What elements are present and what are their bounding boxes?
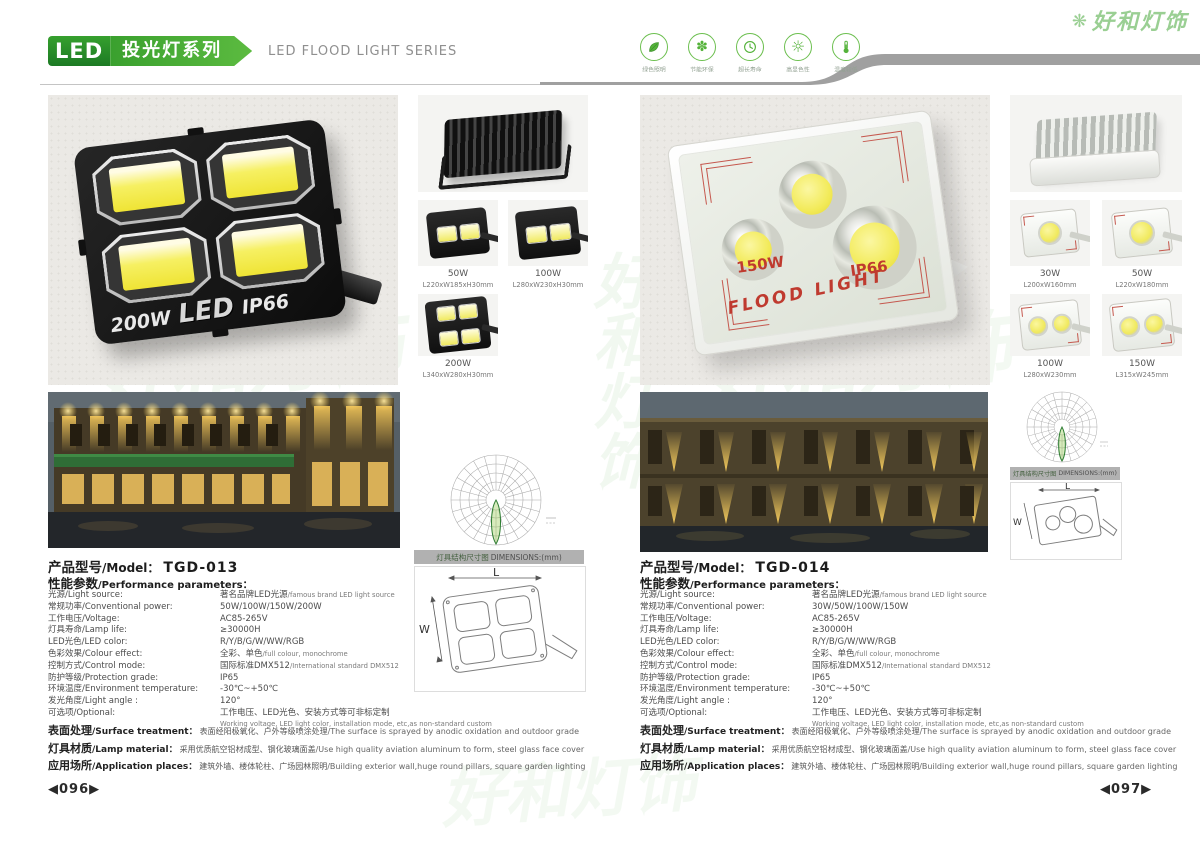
thumb-caption: 30W L200xW160mm	[1010, 269, 1090, 289]
mini-lamp	[1111, 207, 1173, 259]
spec-sub: /famous brand LED light source	[880, 591, 987, 599]
thumb-caption: 100W L280xW230mm	[1010, 359, 1090, 379]
corner-ornament	[861, 131, 909, 187]
spec-row: 工作电压/Voltage:AC85-265V	[48, 614, 420, 626]
sun-icon: ☼	[784, 33, 812, 61]
product-photo-white-floodlight: 150W FLOOD LIGHT IP66	[640, 95, 990, 385]
spec-row: 发光角度/Light angle :120°	[48, 696, 420, 708]
spec-row: 发光角度/Light angle :120°	[640, 696, 1012, 708]
spec-value: 全彩、单色	[812, 649, 855, 659]
edge-tab	[78, 239, 87, 256]
footnote-label-cn: 表面处理	[640, 724, 684, 737]
spec-value: 30W/50W/100W/150W	[812, 602, 908, 612]
thumb-30w	[1010, 200, 1090, 266]
thumb-150w	[1102, 294, 1182, 356]
spec-label: LED光色/LED color:	[48, 637, 220, 649]
thumb-size: L200xW160mm	[1013, 281, 1087, 289]
mini-chip	[1027, 315, 1049, 337]
spec-row: 工作电压/Voltage:AC85-265V	[640, 614, 1012, 626]
footnote-cn: 建筑外墙、楼体轮柱、广场园林照明	[199, 762, 327, 771]
footnote-label-en: /Lamp material：	[92, 745, 178, 755]
spec-value: 国际标准DMX512	[812, 661, 882, 671]
mini-chip	[438, 330, 458, 347]
led-chip	[100, 224, 213, 306]
mini-chip	[1037, 220, 1063, 246]
mini-chip	[459, 223, 481, 241]
spec-label: 防护等级/Protection grade:	[640, 673, 812, 685]
thermometer-icon	[832, 33, 860, 61]
spec-label: 环境温度/Environment temperature:	[48, 684, 220, 696]
feature-high-cri: ☼ 高显色性	[780, 33, 816, 74]
spec-label: 发光角度/Light angle :	[640, 696, 812, 708]
corner-mark	[1158, 241, 1170, 251]
spec-value: ≥30000H	[812, 625, 853, 635]
spec-value: 50W/100W/150W/200W	[220, 602, 322, 612]
footnotes: 表面处理/Surface treatment：表面经阳极氧化、户外等级喷涂处理/…	[640, 722, 1188, 775]
spec-value: R/Y/B/G/W/WW/RGB	[220, 637, 304, 647]
marking-ip: IP66	[241, 290, 291, 318]
dimension-drawing: L W	[414, 566, 586, 692]
footnote-row: 应用场所/Application places：建筑外墙、楼体轮柱、广场园林照明…	[48, 757, 596, 775]
feature-label: 绿色照明	[642, 65, 665, 74]
spec-label: 工作电压/Voltage:	[640, 614, 812, 626]
footnote-label-en: /Surface treatment：	[684, 727, 790, 737]
mini-lamp	[426, 207, 490, 259]
spec-value: 120°	[812, 696, 832, 706]
params-cn: 性能参数	[640, 576, 690, 591]
spec-value: 工作电压、LED光色、安装方式等可非标定制	[812, 708, 982, 718]
thumb-power: 100W	[1010, 359, 1090, 370]
mini-lamp	[1109, 298, 1176, 352]
mini-chip	[1051, 313, 1073, 335]
spec-label: 常规功率/Conventional power:	[48, 602, 220, 614]
beam-lobe	[1059, 427, 1066, 461]
led-chip-round	[774, 156, 851, 233]
banner-text-cn: 灯具结构尺寸图	[436, 552, 489, 563]
mini-chip	[1143, 312, 1166, 335]
corner-mark	[1065, 240, 1077, 250]
corner-mark	[1021, 307, 1033, 317]
light-distribution-polar-chart	[424, 452, 574, 548]
mini-lamp	[424, 296, 491, 354]
mini-chip	[549, 222, 572, 241]
leaf-icon	[640, 33, 668, 61]
corner-mark	[1112, 306, 1124, 316]
led-logo-badge: LED	[48, 36, 110, 66]
footnote-label-en: /Surface treatment：	[92, 727, 198, 737]
spec-row: LED光色/LED color:R/Y/B/G/W/WW/RGB	[48, 637, 420, 649]
spec-label: 发光角度/Light angle :	[48, 696, 220, 708]
mini-lamp	[1020, 208, 1080, 258]
feature-long-life: 超长寿命	[732, 33, 768, 74]
edge-tab	[212, 329, 229, 338]
spec-label: 灯具寿命/Lamp life:	[640, 625, 812, 637]
page-number-left: ◀096▶	[48, 782, 100, 797]
feature-label: 超长寿命	[738, 65, 761, 74]
footnote-en: /The surface is sprayed by anodic oxidat…	[920, 727, 1171, 736]
dim-label-w: W	[419, 623, 430, 636]
thumb-100w	[508, 200, 588, 266]
thumb-power: 150W	[1102, 359, 1182, 370]
spec-row: 环境温度/Environment temperature:-30℃~+50℃	[640, 684, 1012, 696]
marking-brand: LED	[176, 292, 236, 329]
series-title-cn: 投光灯系列	[110, 36, 252, 66]
header-divider	[40, 84, 560, 85]
thumb-caption: 100W L280xW230xH30mm	[508, 269, 588, 289]
footnotes: 表面处理/Surface treatment：表面经阳极氧化、户外等级喷涂处理/…	[48, 722, 596, 775]
params-cn: 性能参数	[48, 576, 98, 591]
led-chip	[90, 146, 203, 228]
footnote-cn: 采用优质航空铝材成型、钢化玻璃面盖	[772, 745, 908, 754]
thumb-size: L220xW185xH30mm	[421, 281, 495, 289]
spec-label: 控制方式/Control mode:	[48, 661, 220, 673]
floodlight-body: 150W FLOOD LIGHT IP66	[667, 110, 960, 357]
footnote-cn: 建筑外墙、楼体轮柱、广场园林照明	[791, 762, 919, 771]
dim-label-l: L	[1065, 483, 1070, 492]
spec-label: 灯具寿命/Lamp life:	[48, 625, 220, 637]
spec-row: 控制方式/Control mode:国际标准DMX512/Internation…	[640, 661, 1012, 673]
footnote-cn: 表面经阳极氧化、户外等级喷涂处理	[792, 727, 920, 736]
thumb-caption: 200W L340xW280xH30mm	[418, 359, 498, 379]
thumb-rear-view	[418, 95, 588, 192]
mini-lamp	[1018, 299, 1082, 351]
footnote-label-cn: 应用场所	[640, 759, 684, 772]
footnote-en: /Building exterior wall,huge round pilla…	[327, 762, 585, 771]
spec-label: 光源/Light source:	[48, 590, 220, 602]
spec-row: 色彩效果/Colour effect:全彩、单色/full colour, mo…	[640, 649, 1012, 661]
footnote-label-cn: 表面处理	[48, 724, 92, 737]
series-logo: LED 投光灯系列	[48, 36, 252, 66]
feature-green-lighting: 绿色照明	[636, 33, 672, 74]
thumb-power: 50W	[1102, 269, 1182, 280]
spec-value: 全彩、单色	[220, 649, 263, 659]
clock-icon	[736, 33, 764, 61]
footnote-cn: 采用优质航空铝材成型、钢化玻璃面盖	[180, 745, 316, 754]
footnote-row: 表面处理/Surface treatment：表面经阳极氧化、户外等级喷涂处理/…	[48, 722, 596, 740]
led-chip-array	[90, 132, 326, 306]
mini-chip	[460, 328, 480, 345]
beam-lobe	[492, 500, 501, 544]
footnote-en: /Building exterior wall,huge round pilla…	[919, 762, 1177, 771]
spec-table: 光源/Light source:著名品牌LED光源/famous brand L…	[48, 590, 420, 729]
corner-mark	[1160, 334, 1172, 344]
floodlight-body: 200WLEDIP66	[73, 118, 347, 345]
footnote-label-cn: 灯具材质	[48, 742, 92, 755]
spec-row: 防护等级/Protection grade:IP65	[48, 673, 420, 685]
thumb-size: L220xW180mm	[1105, 281, 1179, 289]
spec-sub: /full colour, monochrome	[855, 650, 940, 658]
mini-chip	[525, 225, 548, 244]
mini-chip	[1118, 315, 1141, 338]
footnote-cn: 表面经阳极氧化、户外等级喷涂处理	[200, 727, 328, 736]
thumb-power: 30W	[1010, 269, 1090, 280]
spec-row: 常规功率/Conventional power:30W/50W/100W/150…	[640, 602, 1012, 614]
spec-label: 工作电压/Voltage:	[48, 614, 220, 626]
application-photo-building-night	[640, 392, 988, 552]
spec-label: LED光色/LED color:	[640, 637, 812, 649]
thumb-caption: 150W L315xW245mm	[1102, 359, 1182, 379]
thumb-size: L280xW230xH30mm	[511, 281, 585, 289]
spec-value: 国际标准DMX512	[220, 661, 290, 671]
spec-row: 防护等级/Protection grade:IP65	[640, 673, 1012, 685]
thumb-power: 100W	[508, 269, 588, 280]
spec-row: 常规功率/Conventional power:50W/100W/150W/20…	[48, 602, 420, 614]
spec-row: 色彩效果/Colour effect:全彩、单色/full colour, mo…	[48, 649, 420, 661]
mini-chip	[1128, 219, 1157, 248]
spec-value: 工作电压、LED光色、安装方式等可非标定制	[220, 708, 390, 718]
brand-watermark-top-right: ❋好和灯饰	[1072, 4, 1188, 36]
spec-sub: /full colour, monochrome	[263, 650, 348, 658]
spec-value: IP65	[812, 673, 830, 683]
spec-label: 色彩效果/Colour effect:	[640, 649, 812, 661]
spec-label: 防护等级/Protection grade:	[48, 673, 220, 685]
catalog-sheet: LED 投光灯系列 LED FLOOD LIGHT SERIES 绿色照明 ✽ …	[0, 0, 1200, 820]
spec-label: 色彩效果/Colour effect:	[48, 649, 220, 661]
thumb-rear-view	[1010, 95, 1182, 192]
series-title-en: LED FLOOD LIGHT SERIES	[268, 44, 457, 59]
thumb-size: L315xW245mm	[1105, 371, 1179, 379]
spec-value: ≥30000H	[220, 625, 261, 635]
corner-mark	[1067, 333, 1079, 343]
application-photo-building-night	[48, 392, 400, 548]
thumb-size: L340xW280xH30mm	[421, 371, 495, 379]
feature-low-temperature: 温度较低	[828, 33, 864, 74]
thumb-size: L280xW230mm	[1013, 371, 1087, 379]
lamp-face: 150W FLOOD LIGHT IP66	[678, 121, 948, 345]
feature-label: 温度较低	[834, 65, 857, 74]
spec-row: LED光色/LED color:R/Y/B/G/W/WW/RGB	[640, 637, 1012, 649]
dim-label-w: W	[1013, 518, 1022, 528]
spec-label: 环境温度/Environment temperature:	[640, 684, 812, 696]
thumb-50w	[418, 200, 498, 266]
feature-icons: 绿色照明 ✽ 节能环保 超长寿命 ☼ 高显色性 温度较低	[636, 33, 864, 74]
corner-mark	[1023, 216, 1035, 226]
thumb-power: 200W	[418, 359, 498, 370]
thumb-200w	[418, 294, 498, 356]
spec-value: -30℃~+50℃	[812, 684, 870, 694]
led-chip	[204, 132, 317, 214]
spec-row: 控制方式/Control mode:国际标准DMX512/Internation…	[48, 661, 420, 673]
thumb-caption: 50W L220xW180mm	[1102, 269, 1182, 289]
footnote-label-en: /Application places：	[92, 762, 197, 772]
banner-text-en: DIMENSIONS:(mm)	[1058, 470, 1117, 477]
thumb-power: 50W	[418, 269, 498, 280]
edge-tab	[333, 208, 342, 225]
spec-value: 著名品牌LED光源	[812, 590, 880, 600]
corner-ornament	[700, 157, 756, 205]
pinwheel-icon: ✽	[688, 33, 716, 61]
product-photo-black-floodlight: 200WLEDIP66	[48, 95, 398, 385]
footnote-en: /Use high quality aviation aluminum to f…	[316, 745, 585, 754]
feature-energy-saving: ✽ 节能环保	[684, 33, 720, 74]
spec-sub: /International standard DMX512	[882, 662, 991, 670]
mini-chip	[436, 306, 456, 323]
spec-value: R/Y/B/G/W/WW/RGB	[812, 637, 896, 647]
page-number-right: ◀097▶	[1100, 782, 1152, 797]
spec-sub: /International standard DMX512	[290, 662, 399, 670]
footnote-en: /Use high quality aviation aluminum to f…	[908, 745, 1177, 754]
spec-row: 环境温度/Environment temperature:-30℃~+50℃	[48, 684, 420, 696]
spec-label: 控制方式/Control mode:	[640, 661, 812, 673]
footnote-row: 表面处理/Surface treatment：表面经阳极氧化、户外等级喷涂处理/…	[640, 722, 1188, 740]
thumb-caption: 50W L220xW185xH30mm	[418, 269, 498, 289]
brand-swirl-icon: ❋	[1072, 11, 1089, 32]
spec-value: AC85-265V	[812, 614, 860, 624]
banner-text-en: DIMENSIONS:(mm)	[491, 553, 562, 562]
spec-row: 光源/Light source:著名品牌LED光源/famous brand L…	[48, 590, 420, 602]
mini-lamp	[515, 206, 582, 260]
spec-row: 灯具寿命/Lamp life:≥30000H	[48, 625, 420, 637]
spec-value: IP65	[220, 673, 238, 683]
footnote-label-en: /Lamp material：	[684, 745, 770, 755]
footnote-label-cn: 灯具材质	[640, 742, 684, 755]
dim-label-l: L	[493, 567, 500, 579]
mini-chip	[436, 225, 458, 243]
footnote-row: 灯具材质/Lamp material：采用优质航空铝材成型、钢化玻璃面盖/Use…	[640, 740, 1188, 758]
led-chip	[213, 210, 326, 292]
mini-chip	[457, 303, 477, 320]
banner-text-cn: 灯具结构尺寸图	[1013, 469, 1056, 478]
spec-value: -30℃~+50℃	[220, 684, 278, 694]
footnote-label-en: /Application places：	[684, 762, 789, 772]
spec-label: 常规功率/Conventional power:	[640, 602, 812, 614]
dimensions-banner: 灯具结构尺寸图DIMENSIONS:(mm)	[1010, 467, 1120, 480]
spec-sub: /famous brand LED light source	[288, 591, 395, 599]
corner-mark	[1114, 215, 1126, 225]
thumb-100w	[1010, 294, 1090, 356]
footnote-en: /The surface is sprayed by anodic oxidat…	[328, 727, 579, 736]
feature-label: 节能环保	[690, 65, 713, 74]
footnote-row: 应用场所/Application places：建筑外墙、楼体轮柱、广场园林照明…	[640, 757, 1188, 775]
spec-label: 光源/Light source:	[640, 590, 812, 602]
spec-table: 光源/Light source:著名品牌LED光源/famous brand L…	[640, 590, 1012, 729]
light-distribution-polar-chart	[1010, 390, 1120, 465]
footnote-label-cn: 应用场所	[48, 759, 92, 772]
footnote-row: 灯具材质/Lamp material：采用优质航空铝材成型、钢化玻璃面盖/Use…	[48, 740, 596, 758]
thumb-50w	[1102, 200, 1182, 266]
dimensions-banner: 灯具结构尺寸图DIMENSIONS:(mm)	[414, 550, 584, 564]
spec-value: AC85-265V	[220, 614, 268, 624]
spec-value: 著名品牌LED光源	[220, 590, 288, 600]
marking-power: 200W	[109, 307, 172, 337]
spec-value: 120°	[220, 696, 240, 706]
feature-label: 高显色性	[786, 65, 809, 74]
edge-tab	[187, 127, 204, 136]
spec-row: 灯具寿命/Lamp life:≥30000H	[640, 625, 1012, 637]
dimension-drawing: L W	[1010, 482, 1122, 560]
spec-row: 光源/Light source:著名品牌LED光源/famous brand L…	[640, 590, 1012, 602]
